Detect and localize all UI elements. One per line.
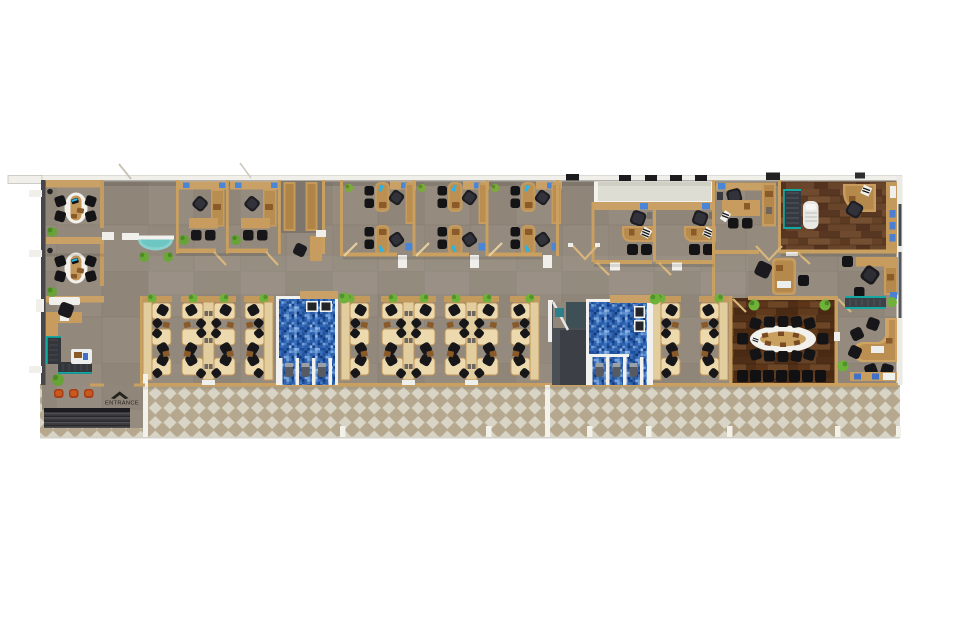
svg-text:ENTRANCE: ENTRANCE [105,401,139,407]
